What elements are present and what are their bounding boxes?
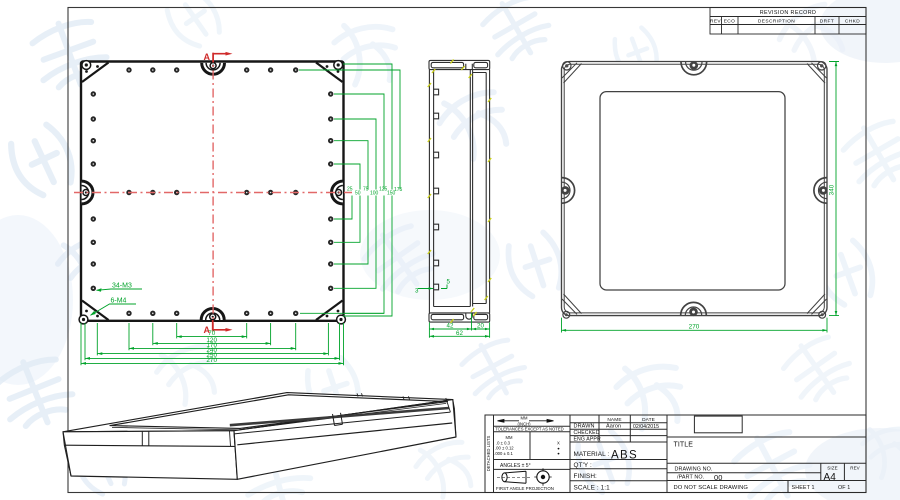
svg-text:SHEET 1: SHEET 1 [792, 485, 815, 491]
svg-text:REV: REV [850, 465, 860, 470]
svg-text:340: 340 [829, 184, 836, 195]
svg-text:FIRST ANGLE PROJECTION: FIRST ANGLE PROJECTION [496, 486, 554, 491]
svg-text:DO NOT SCALE DRAWING: DO NOT SCALE DRAWING [674, 485, 749, 491]
svg-text:75: 75 [363, 187, 369, 193]
svg-text:MM: MM [521, 416, 528, 421]
svg-text:DRAWING NO.: DRAWING NO. [675, 467, 713, 473]
svg-text:ECO: ECO [724, 19, 736, 25]
svg-text:02/04/2015: 02/04/2015 [633, 424, 659, 430]
svg-text:34-M3: 34-M3 [112, 283, 132, 290]
svg-text:REVISION RECORD: REVISION RECORD [760, 10, 817, 16]
svg-text:270: 270 [689, 323, 700, 330]
svg-text:25: 25 [347, 187, 353, 193]
svg-text:.0 ± 0.3: .0 ± 0.3 [496, 440, 511, 445]
svg-text:SCALE : 1:1: SCALE : 1:1 [574, 484, 611, 491]
svg-text:DRAWN: DRAWN [574, 424, 595, 430]
svg-text:QT'Y :: QT'Y : [574, 462, 593, 469]
svg-text:A4: A4 [824, 472, 837, 483]
svg-text:OF 1: OF 1 [838, 485, 850, 491]
svg-text:FINISH:: FINISH: [574, 473, 598, 480]
svg-text:.000 ± 0.1: .000 ± 0.1 [494, 451, 513, 456]
svg-text:Aaron: Aaron [606, 424, 621, 430]
svg-text:6-M4: 6-M4 [111, 298, 127, 305]
svg-text:X: X [557, 440, 560, 445]
svg-text:CHKD: CHKD [845, 19, 860, 25]
svg-text:SIZE: SIZE [827, 465, 837, 470]
svg-text:100: 100 [370, 191, 379, 197]
svg-text:20: 20 [477, 323, 484, 330]
svg-text:ABS: ABS [611, 449, 638, 461]
svg-text:MATERIAL :: MATERIAL : [574, 451, 610, 458]
svg-text:TITLE: TITLE [674, 441, 694, 448]
svg-text:42: 42 [447, 323, 454, 330]
svg-text:DRFT: DRFT [820, 19, 834, 25]
svg-text:3: 3 [415, 288, 419, 295]
svg-text:50: 50 [355, 191, 361, 197]
svg-text:A: A [204, 52, 211, 62]
svg-text:REV: REV [710, 19, 721, 25]
svg-text:TOLERANCES EXCEPT AS NOTED: TOLERANCES EXCEPT AS NOTED [495, 427, 564, 432]
svg-text:00: 00 [714, 473, 723, 482]
svg-text:5: 5 [447, 279, 451, 286]
svg-text:270: 270 [206, 357, 217, 364]
svg-text:DETACHED LISTS: DETACHED LISTS [486, 436, 491, 472]
svg-text:ENG APPR: ENG APPR [574, 437, 601, 443]
svg-text:CHECKED: CHECKED [574, 430, 600, 436]
svg-text:/PART NO.: /PART NO. [677, 475, 704, 481]
svg-text:NAME: NAME [607, 417, 621, 423]
svg-text:ANGLES ± 5°: ANGLES ± 5° [500, 463, 531, 469]
svg-text:175: 175 [394, 187, 403, 193]
svg-text:DATE: DATE [642, 417, 655, 423]
svg-text:DESCRIPTION: DESCRIPTION [758, 19, 795, 25]
svg-text:62: 62 [456, 330, 463, 337]
